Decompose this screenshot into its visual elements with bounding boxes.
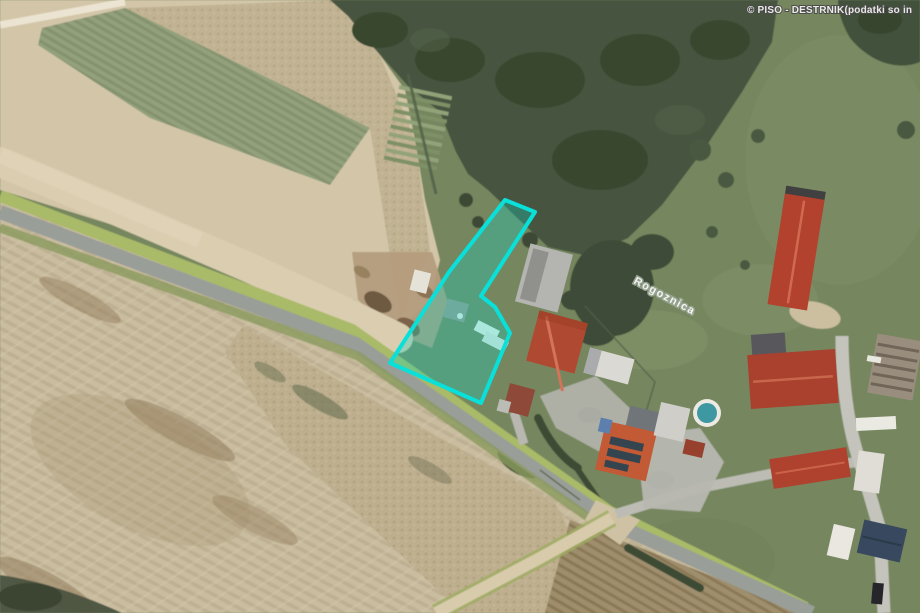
pool-water [697,403,717,423]
dark-car [871,583,884,605]
aerial-map[interactable]: Rogoznica © PISO - DESTRNIK(podatki so i… [0,0,920,613]
corner-trees-shade [0,583,62,611]
white-trailer [856,416,897,431]
building-white-edge [853,450,884,493]
watermark: © PISO - DESTRNIK(podatki so in [747,5,912,16]
